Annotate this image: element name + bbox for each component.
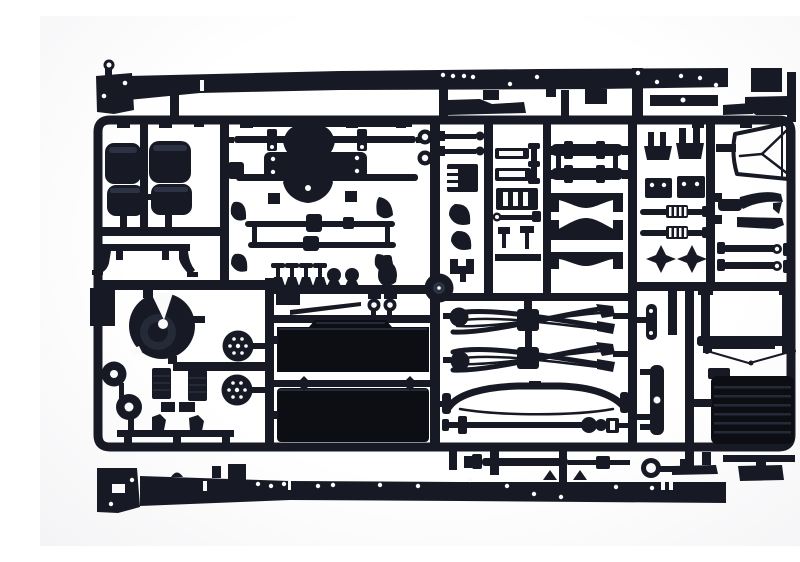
under-frame-parts — [464, 452, 795, 481]
clamp-cluster — [640, 128, 710, 273]
wishbone — [708, 192, 784, 229]
driveshaft — [442, 416, 631, 434]
shackle-links — [276, 294, 397, 317]
tank-lower — [271, 388, 429, 442]
tie-rods — [231, 197, 396, 273]
frame-block — [90, 288, 115, 326]
junction-ball — [425, 274, 454, 303]
bottom-chassis-rail — [97, 464, 726, 513]
bracket-cluster-a — [418, 130, 485, 283]
spring-stacks — [152, 368, 207, 412]
spring-pack-2 — [443, 331, 628, 372]
slat-bracket — [637, 365, 664, 435]
tank-upper — [271, 320, 429, 372]
bracket-cluster-b — [493, 143, 542, 261]
u-bracket — [697, 289, 794, 353]
front-axle-beam — [433, 381, 635, 414]
step-bracket — [92, 244, 198, 277]
sprue-photo: Black injection-molded plastic model kit… — [40, 16, 800, 546]
fifth-wheel-plate — [129, 287, 205, 364]
air-funnel — [716, 123, 788, 179]
muffler-parts — [546, 141, 629, 269]
wheel-hubs-small — [97, 362, 142, 421]
holes-strip — [637, 304, 657, 340]
rear-axle-lower — [228, 152, 418, 204]
spring-pack-1 — [443, 301, 628, 334]
seat-right — [143, 141, 192, 228]
radiator — [692, 368, 794, 444]
seat-left — [105, 143, 144, 228]
sprue-svg — [40, 16, 800, 546]
ring-rods — [717, 242, 793, 273]
